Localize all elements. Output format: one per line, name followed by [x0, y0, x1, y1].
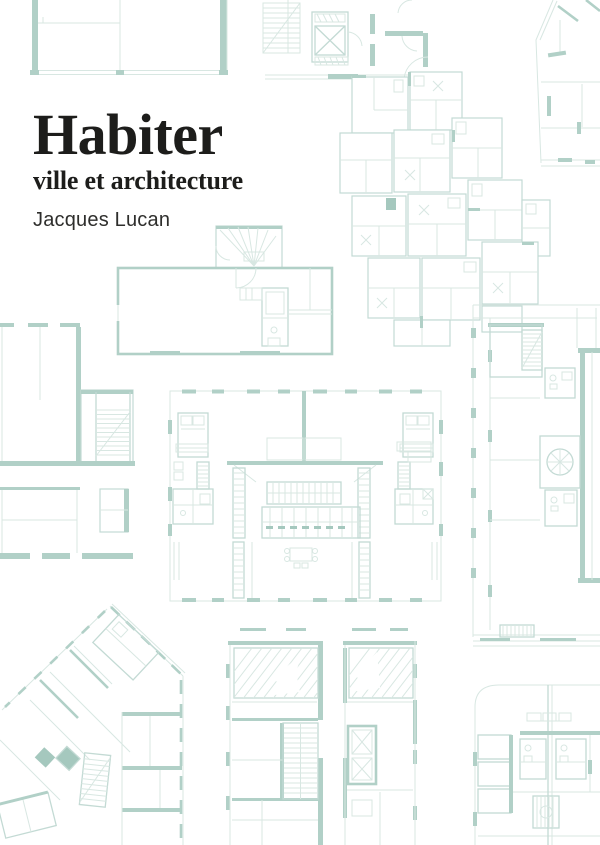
floorplan-right-tower	[471, 305, 600, 646]
title-block: Habiter ville et architecture Jacques Lu…	[33, 106, 243, 230]
book-title: Habiter	[33, 106, 243, 164]
floorplan-house-mid-left	[116, 226, 332, 355]
floorplan-top-center-stair-elevator	[263, 0, 428, 79]
floorplan-left-edge	[0, 323, 135, 559]
book-cover: Habiter ville et architecture Jacques Lu…	[0, 0, 600, 845]
floorplan-bottom-left-angled	[0, 604, 185, 845]
floorplan-top-right-angled	[536, 0, 600, 166]
book-author: Jacques Lucan	[33, 210, 243, 230]
floorplan-bottom-center-towers	[212, 628, 440, 845]
book-subtitle: ville et architecture	[33, 168, 243, 194]
floorplan-center-symmetric	[168, 390, 443, 603]
floorplan-top-left	[30, 0, 228, 75]
floorplan-bottom-right-grid	[473, 685, 600, 845]
